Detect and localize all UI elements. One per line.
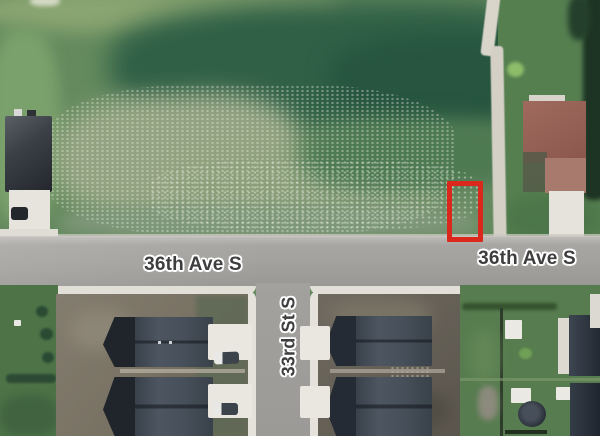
aerial-map[interactable]: 36th Ave S 36th Ave S 33rd St S: [0, 0, 600, 436]
roof-vent: [169, 341, 172, 344]
driveway-edge: [590, 294, 600, 328]
bush: [507, 62, 524, 77]
duplex-roof: [135, 317, 213, 367]
bush: [519, 348, 532, 359]
tree-blob: [568, 0, 590, 40]
bush: [36, 306, 48, 317]
duplex-roof: [356, 377, 432, 436]
lawn-dark-patch: [0, 395, 58, 436]
shed: [505, 320, 522, 339]
west-house-roof: [5, 116, 52, 192]
hedge-row: [6, 374, 56, 383]
road-label-36th-ave-east: 36th Ave S: [462, 248, 592, 270]
road-label-33rd-st: 33rd St S: [279, 294, 300, 380]
duplex-driveway: [300, 386, 330, 418]
parked-car: [11, 207, 28, 220]
duplex-roof: [356, 316, 432, 366]
lawn-white-object: [14, 320, 21, 326]
east-house-driveway: [549, 191, 584, 239]
shed: [556, 387, 571, 400]
lawn-light-patch: [470, 330, 498, 380]
selected-parcel-marker[interactable]: [447, 181, 483, 242]
hedge-row: [462, 303, 557, 310]
duplex-roof: [135, 377, 213, 436]
sidewalk-north-west: [0, 229, 58, 236]
bush: [40, 328, 53, 340]
east-house-wing-roof: [545, 158, 586, 193]
bush: [42, 352, 54, 363]
southwest-lawn: [0, 285, 58, 436]
road-north-edge: [0, 234, 600, 237]
rooftop-unit: [27, 110, 36, 116]
partial-house-gable: [558, 318, 569, 374]
east-house-shadow-side: [523, 152, 547, 192]
parked-car: [214, 352, 239, 365]
duplex-driveway: [300, 326, 330, 360]
southeast-lawn: [460, 285, 600, 436]
gravel-patch: [478, 386, 498, 420]
fence-line: [500, 308, 503, 436]
field-texture-patch: [30, 0, 60, 6]
rooftop-unit: [14, 109, 22, 116]
trampoline: [518, 401, 546, 427]
road-label-36th-ave-west: 36th Ave S: [128, 254, 258, 276]
fence-line: [505, 430, 547, 434]
grass-speckle-texture: [150, 160, 480, 230]
partial-house-roof: [570, 383, 600, 436]
lot-line: [460, 378, 600, 381]
roof-vent: [158, 341, 161, 344]
walkway: [330, 369, 445, 373]
grass-field: [0, 0, 600, 242]
walkway: [120, 369, 245, 373]
parked-car: [213, 403, 238, 415]
